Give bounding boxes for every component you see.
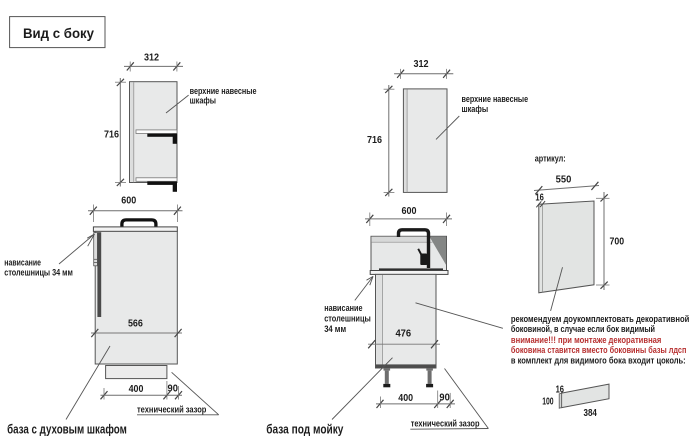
svg-text:16: 16 <box>535 193 544 204</box>
svg-text:боковиной, в случае если бок в: боковиной, в случае если бок видимый <box>511 324 655 335</box>
svg-text:16: 16 <box>556 384 565 395</box>
svg-text:шкафы: шкафы <box>462 104 489 115</box>
svg-text:100: 100 <box>542 396 554 407</box>
svg-text:400: 400 <box>398 393 413 404</box>
svg-text:34 мм: 34 мм <box>324 324 346 335</box>
svg-text:технический зазор: технический зазор <box>137 404 207 415</box>
svg-text:в комплект для видимого бока в: в комплект для видимого бока входит цоко… <box>511 356 686 367</box>
svg-text:Вид с боку: Вид с боку <box>23 25 94 41</box>
svg-text:столешницы 34 мм: столешницы 34 мм <box>4 268 73 279</box>
svg-text:700: 700 <box>610 237 625 248</box>
svg-text:600: 600 <box>402 206 417 217</box>
svg-text:716: 716 <box>104 130 119 141</box>
svg-text:476: 476 <box>395 329 411 340</box>
svg-text:боковина ставится вместо боков: боковина ставится вместо боковины базы л… <box>511 345 687 356</box>
svg-text:550: 550 <box>556 175 572 186</box>
svg-text:технический зазор: технический зазор <box>411 419 480 430</box>
svg-text:716: 716 <box>367 135 382 146</box>
svg-text:90: 90 <box>439 392 450 403</box>
svg-text:312: 312 <box>413 59 428 70</box>
svg-text:база под мойку: база под мойку <box>266 423 343 437</box>
svg-text:566: 566 <box>128 318 143 329</box>
svg-text:600: 600 <box>121 196 136 207</box>
svg-text:384: 384 <box>584 408 598 419</box>
svg-text:артикул:: артикул: <box>535 154 566 165</box>
svg-text:400: 400 <box>129 384 144 395</box>
svg-text:шкафы: шкафы <box>190 96 216 107</box>
svg-text:312: 312 <box>144 53 159 64</box>
svg-text:база с духовым шкафом: база с духовым шкафом <box>7 423 127 437</box>
